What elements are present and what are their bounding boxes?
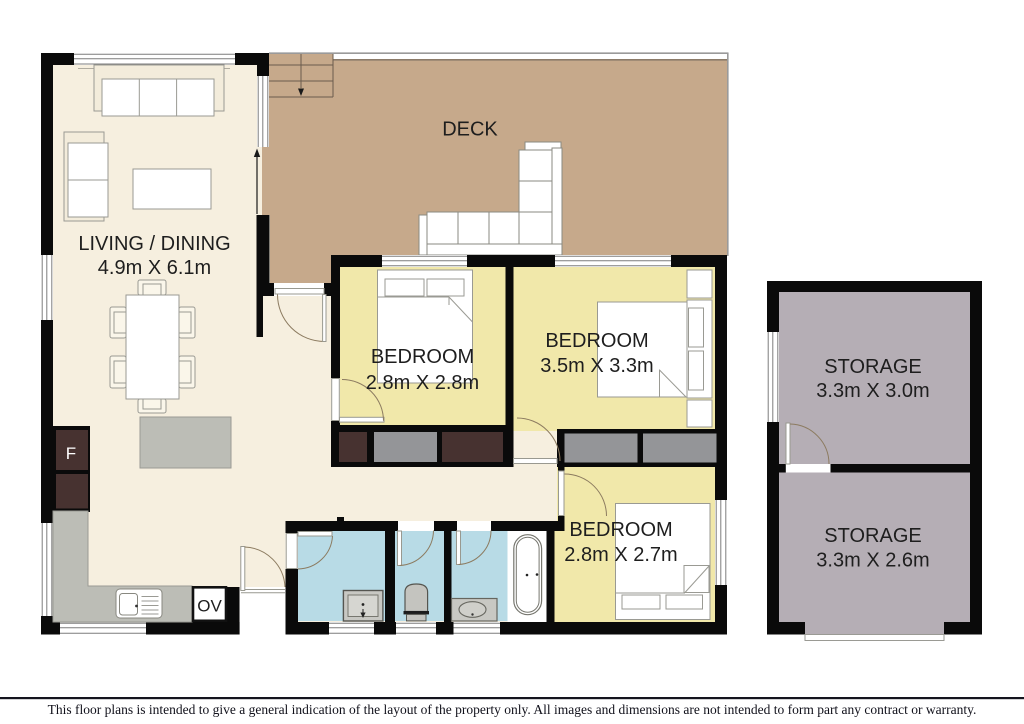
svg-text:BEDROOM: BEDROOM <box>371 346 474 368</box>
svg-text:STORAGE: STORAGE <box>824 525 921 547</box>
svg-text:3.3m X 3.0m: 3.3m X 3.0m <box>816 380 929 402</box>
svg-text:This floor plans is intended t: This floor plans is intended to give a g… <box>48 702 977 717</box>
svg-text:OV: OV <box>197 597 222 616</box>
svg-text:LIVING / DINING: LIVING / DINING <box>78 233 230 255</box>
svg-text:4.9m X 6.1m: 4.9m X 6.1m <box>98 257 211 279</box>
svg-text:DECK: DECK <box>442 119 498 141</box>
svg-text:STORAGE: STORAGE <box>824 356 921 378</box>
svg-text:2.8m X 2.7m: 2.8m X 2.7m <box>564 544 677 566</box>
svg-text:BEDROOM: BEDROOM <box>545 330 648 352</box>
svg-text:F: F <box>66 444 76 463</box>
svg-text:BEDROOM: BEDROOM <box>569 519 672 541</box>
svg-text:2.8m X 2.8m: 2.8m X 2.8m <box>366 372 479 394</box>
svg-text:3.3m X 2.6m: 3.3m X 2.6m <box>816 550 929 572</box>
svg-text:3.5m X 3.3m: 3.5m X 3.3m <box>540 355 653 377</box>
